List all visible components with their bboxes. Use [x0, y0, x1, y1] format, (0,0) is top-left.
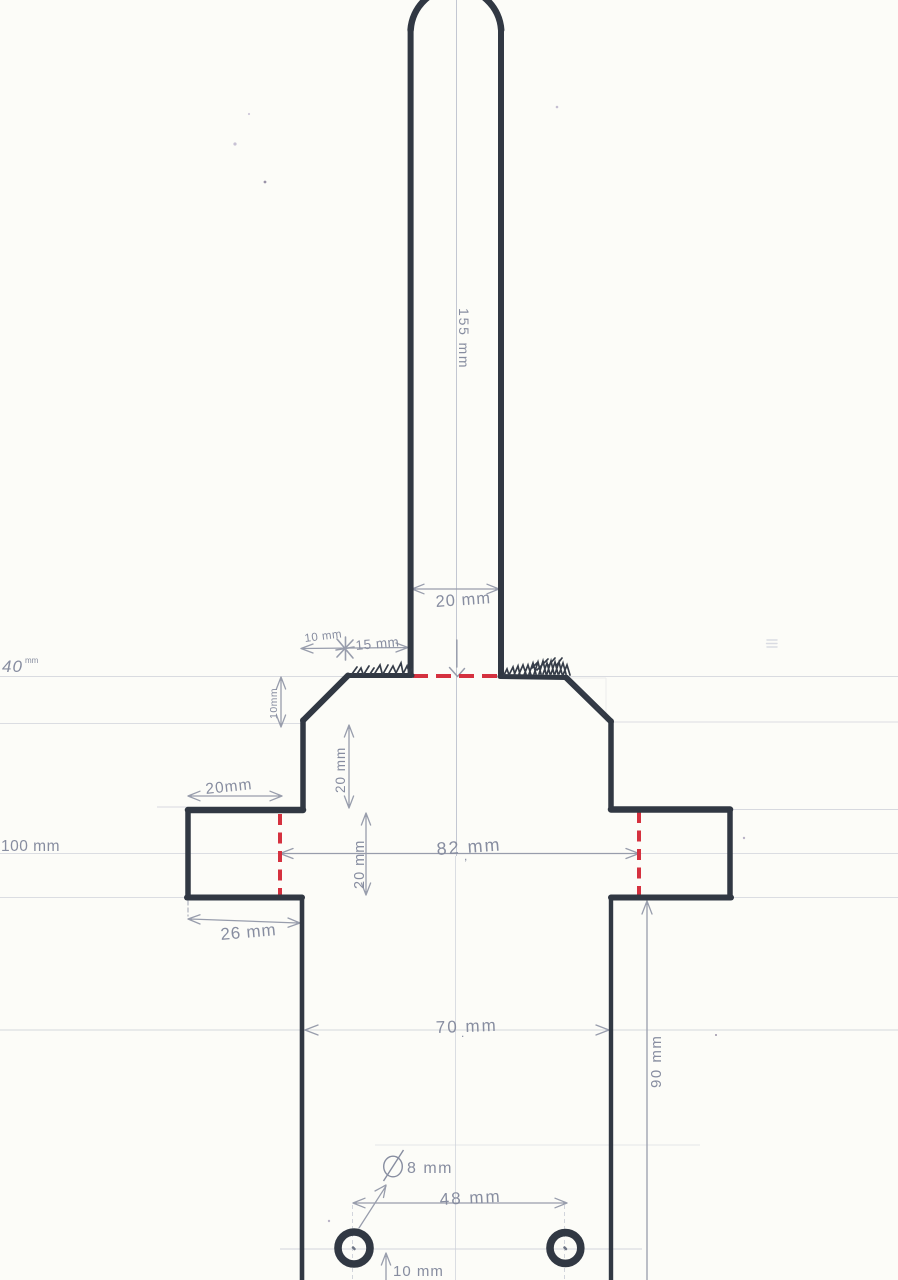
- svg-text:10mm: 10mm: [268, 688, 280, 719]
- svg-text:100 mm: 100 mm: [1, 838, 60, 855]
- svg-text:mm: mm: [25, 656, 39, 665]
- svg-text:40: 40: [2, 657, 23, 676]
- svg-text:,: ,: [464, 849, 468, 863]
- svg-text:8 mm: 8 mm: [407, 1160, 453, 1177]
- svg-text:.: .: [461, 1026, 465, 1040]
- svg-text:70 mm: 70 mm: [435, 1016, 498, 1037]
- svg-text:20 mm: 20 mm: [352, 840, 368, 889]
- svg-text:90 mm: 90 mm: [648, 1035, 665, 1088]
- svg-text:155 mm: 155 mm: [456, 308, 472, 369]
- svg-text:10 mm: 10 mm: [393, 1263, 444, 1280]
- svg-text:48 mm: 48 mm: [439, 1187, 502, 1209]
- svg-text:20 mm: 20 mm: [333, 747, 348, 793]
